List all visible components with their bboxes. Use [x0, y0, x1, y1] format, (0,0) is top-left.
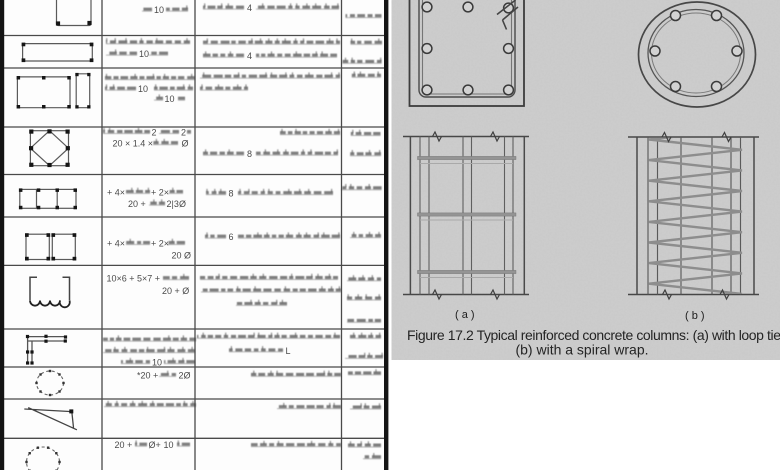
svg-text:2: 2 — [152, 128, 157, 138]
svg-text:+ 2×: + 2× — [151, 239, 169, 249]
svg-text:4: 4 — [247, 3, 252, 13]
svg-text:Ø: Ø — [182, 139, 189, 149]
svg-text:10: 10 — [152, 358, 162, 368]
svg-text:+ 2×: + 2× — [151, 188, 169, 198]
svg-text:2: 2 — [181, 128, 186, 138]
svg-text:20 +: 20 + — [128, 199, 146, 209]
svg-text:Ø: Ø — [179, 199, 186, 209]
svg-text:20 +: 20 + — [115, 440, 133, 450]
svg-text:8: 8 — [247, 149, 252, 159]
svg-text:L: L — [286, 346, 291, 356]
svg-text:Ø+: Ø+ — [149, 440, 161, 450]
svg-text:10: 10 — [138, 84, 148, 94]
svg-text:6: 6 — [229, 232, 234, 242]
svg-text:20 + Ø: 20 + Ø — [162, 286, 189, 296]
svg-text:10×6 + 5×7 +: 10×6 + 5×7 + — [107, 274, 161, 284]
svg-text:10: 10 — [139, 49, 149, 59]
svg-text:8: 8 — [229, 189, 234, 199]
svg-text:( a ): ( a ) — [455, 309, 475, 321]
svg-text:10: 10 — [154, 5, 164, 15]
svg-text:(b) with a spiral wrap.: (b) with a spiral wrap. — [515, 342, 648, 358]
svg-text:2Ø: 2Ø — [179, 371, 191, 381]
svg-text:4: 4 — [247, 51, 252, 61]
svg-text:+ 4×: + 4× — [107, 188, 125, 198]
svg-text:20 × 1.4 ×: 20 × 1.4 × — [113, 139, 154, 149]
svg-text:+ 4×: + 4× — [107, 239, 125, 249]
svg-text:2|3: 2|3 — [167, 199, 179, 209]
svg-text:20 Ø: 20 Ø — [172, 251, 192, 261]
svg-text:( b ): ( b ) — [685, 310, 705, 322]
svg-text:*20 +: *20 + — [137, 371, 158, 381]
svg-text:10: 10 — [164, 440, 174, 450]
svg-text:10: 10 — [165, 94, 175, 104]
